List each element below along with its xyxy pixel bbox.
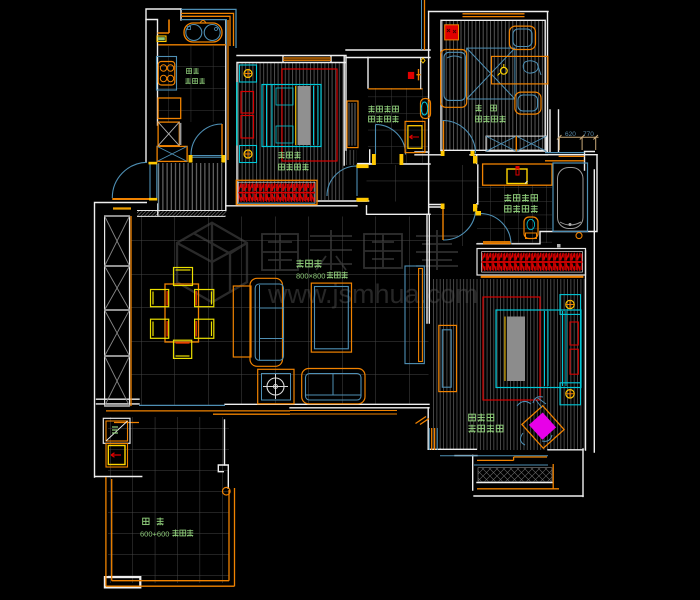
- svg-text:600+600: 600+600: [140, 530, 169, 539]
- svg-text:620: 620: [565, 131, 576, 138]
- svg-text:800×800: 800×800: [296, 272, 325, 281]
- svg-text:770: 770: [583, 131, 594, 138]
